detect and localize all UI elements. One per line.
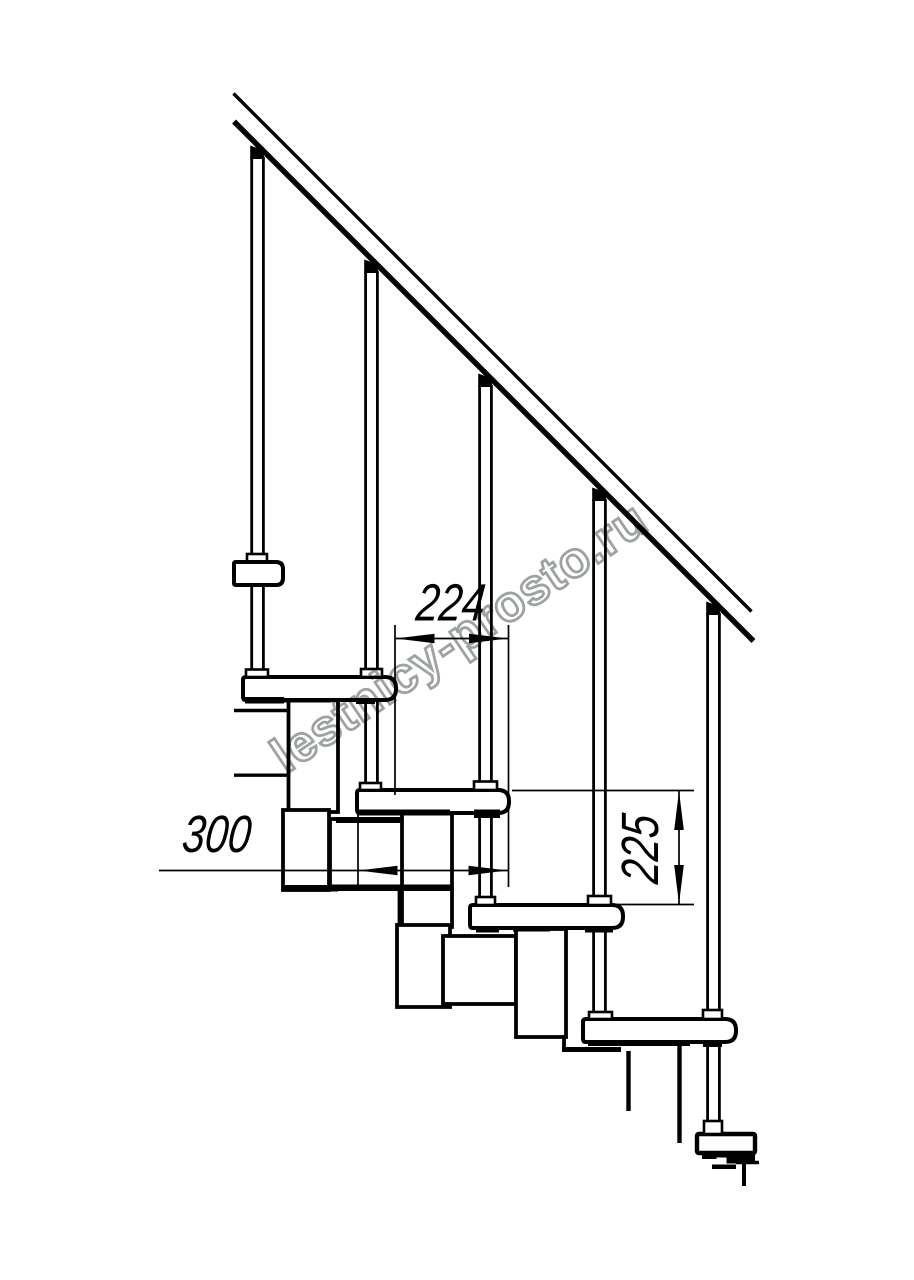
svg-text:225: 225 [611,811,670,887]
svg-text:300: 300 [179,805,254,864]
